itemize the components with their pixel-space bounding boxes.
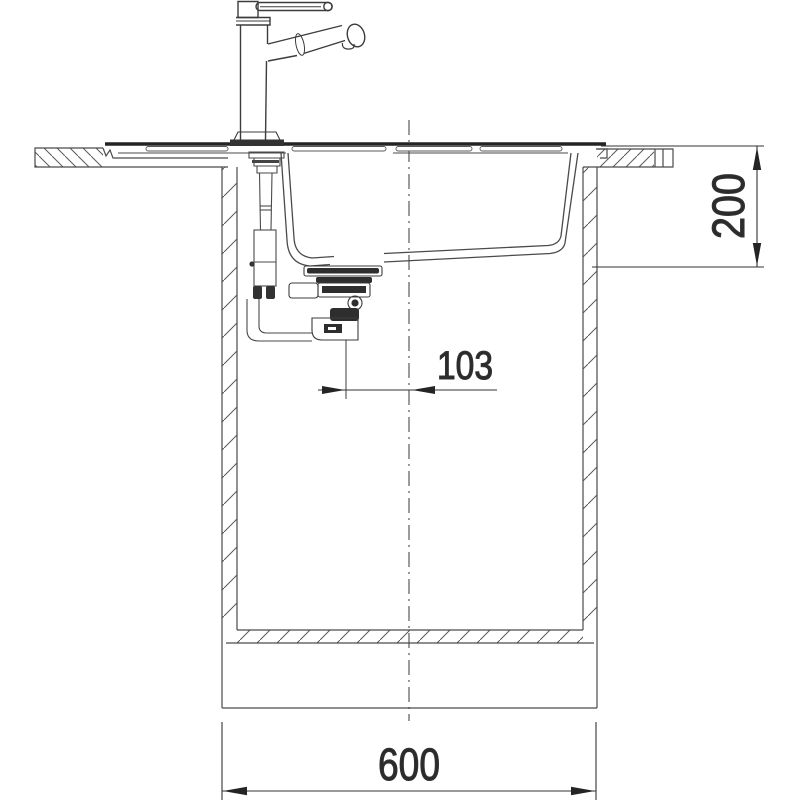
arrow-down-icon xyxy=(753,243,761,266)
arrow-left-icon xyxy=(223,787,247,795)
cabinet-left-wall xyxy=(222,167,237,630)
arrow-up-icon xyxy=(753,147,761,170)
cabinet-bottom-panel xyxy=(237,630,583,643)
sink-rim xyxy=(105,144,606,153)
dimension-label-width: 600 xyxy=(378,739,440,790)
faucet-aerator xyxy=(342,43,354,49)
drawing-canvas: 200 103 600 xyxy=(0,0,800,800)
faucet-spout xyxy=(268,22,367,61)
dimension-drain-offset-103: 103 xyxy=(318,344,497,394)
cabinet-right-wall xyxy=(583,167,597,630)
faucet-plumbing xyxy=(247,152,312,341)
faucet xyxy=(230,2,367,147)
faucet-handle xyxy=(238,2,332,18)
arrow-right-icon xyxy=(571,787,595,795)
arrow-left-icon xyxy=(412,386,435,394)
faucet-base xyxy=(230,132,284,146)
faucet-body xyxy=(241,25,268,140)
technical-drawing-sink-cross-section: 200 103 600 xyxy=(0,0,800,800)
dimension-label-drain-offset: 103 xyxy=(437,344,493,388)
sink-basin xyxy=(281,153,578,266)
arrow-right-icon xyxy=(322,386,345,394)
dimension-width-600: 600 xyxy=(222,722,596,800)
dimension-label-depth: 200 xyxy=(703,173,754,239)
countertop-right-section xyxy=(583,149,673,167)
